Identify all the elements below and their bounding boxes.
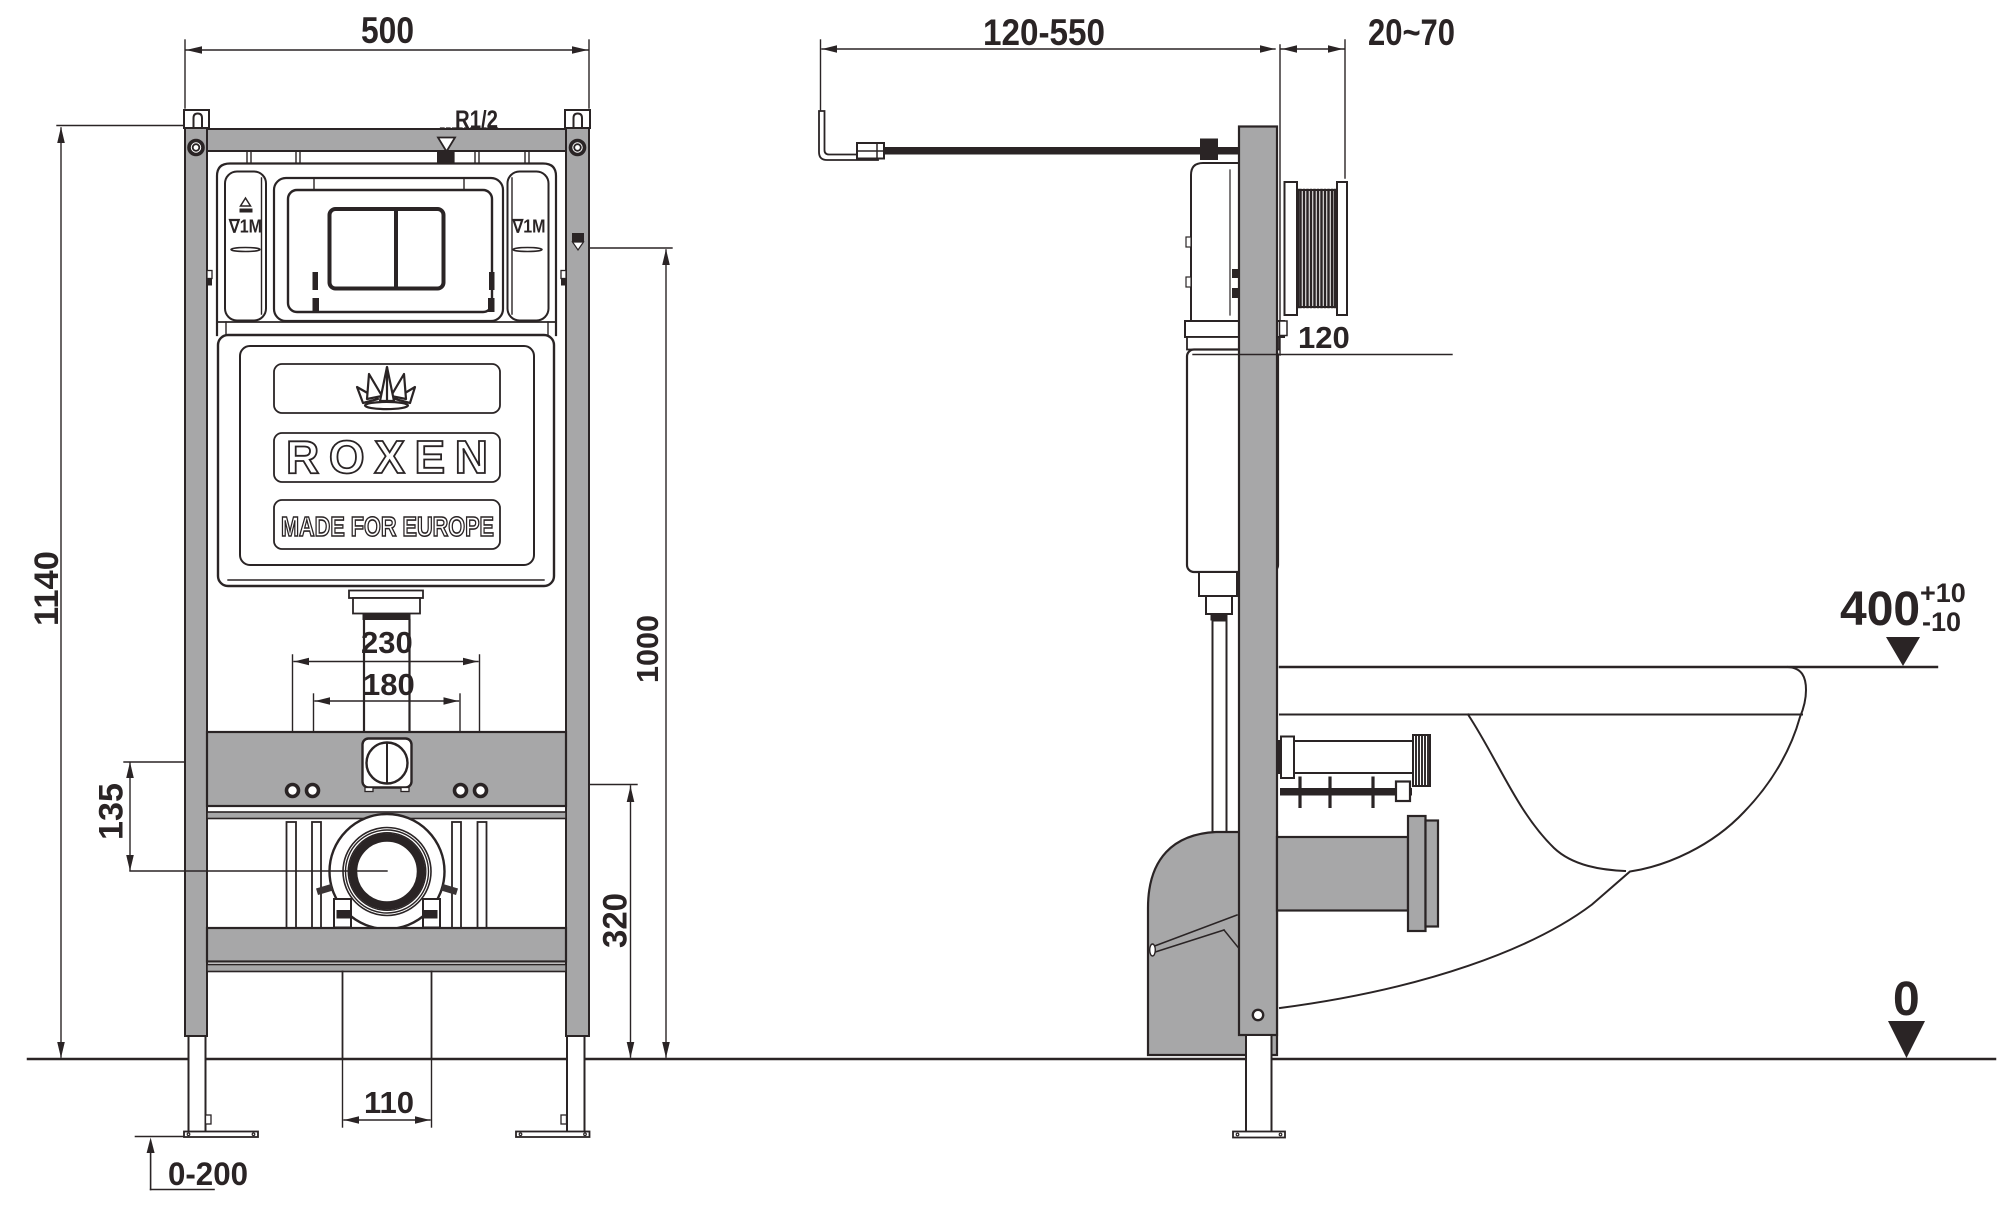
svg-text:120: 120 (1298, 320, 1350, 355)
svg-text:180: 180 (363, 667, 415, 702)
svg-text:∇1M: ∇1M (512, 216, 546, 237)
svg-text:230: 230 (361, 625, 413, 660)
svg-text:1140: 1140 (28, 551, 66, 626)
svg-text:0-200: 0-200 (168, 1156, 248, 1192)
svg-text:-10: -10 (1922, 607, 1961, 637)
svg-text:1000: 1000 (631, 615, 665, 683)
svg-text:400: 400 (1840, 583, 1920, 636)
svg-text:320: 320 (597, 893, 635, 948)
svg-text:135: 135 (93, 783, 131, 840)
svg-text:120-550: 120-550 (983, 12, 1105, 53)
svg-text:20~70: 20~70 (1368, 12, 1455, 53)
svg-text:+10: +10 (1920, 578, 1966, 608)
svg-text:ROXEN: ROXEN (286, 431, 488, 483)
svg-text:500: 500 (361, 10, 414, 51)
svg-text:R1/2: R1/2 (455, 106, 498, 134)
svg-text:110: 110 (364, 1085, 414, 1120)
svg-text:MADE FOR EUROPE: MADE FOR EUROPE (281, 511, 494, 542)
svg-text:0: 0 (1893, 973, 1920, 1026)
svg-text:∇1M: ∇1M (228, 216, 262, 237)
